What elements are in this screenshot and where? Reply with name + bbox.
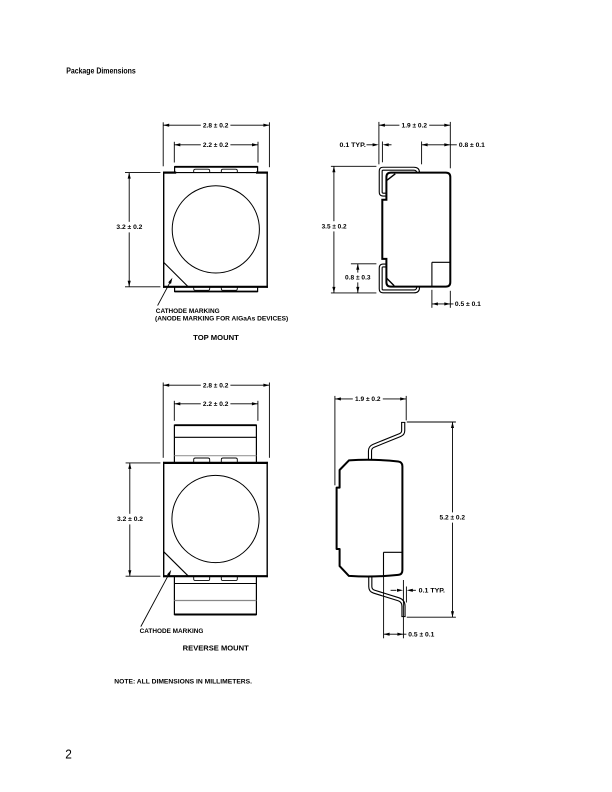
svg-text:(ANODE MARKING FOR AlGaAs DEVI: (ANODE MARKING FOR AlGaAs DEVICES) [155,316,288,322]
svg-text:1.9 ± 0.2: 1.9 ± 0.2 [355,397,381,403]
svg-text:CATHODE MARKING: CATHODE MARKING [140,629,204,635]
svg-text:2: 2 [65,747,72,762]
svg-text:NOTE: ALL DIMENSIONS IN MILLIM: NOTE: ALL DIMENSIONS IN MILLIMETERS. [114,678,252,685]
svg-text:0.1 TYP.: 0.1 TYP. [419,588,446,594]
svg-text:3.2 ± 0.2: 3.2 ± 0.2 [117,517,144,523]
svg-text:0.8 ± 0.3: 0.8 ± 0.3 [345,276,371,282]
svg-text:1.9 ± 0.2: 1.9 ± 0.2 [402,123,428,129]
svg-text:0.8 ± 0.1: 0.8 ± 0.1 [459,143,486,149]
svg-text:0.1 TYP.: 0.1 TYP. [340,143,367,149]
svg-text:REVERSE MOUNT: REVERSE MOUNT [183,646,250,653]
svg-text:2.8 ± 0.2: 2.8 ± 0.2 [203,383,229,389]
svg-text:Package Dimensions: Package Dimensions [66,67,136,76]
svg-text:0.5 ± 0.1: 0.5 ± 0.1 [455,302,482,308]
svg-text:5.2 ± 0.2: 5.2 ± 0.2 [440,516,466,522]
svg-text:TOP MOUNT: TOP MOUNT [193,335,239,342]
svg-text:2.8 ± 0.2: 2.8 ± 0.2 [203,123,229,129]
svg-text:2.2 ± 0.2: 2.2 ± 0.2 [203,143,229,149]
svg-text:2.2 ± 0.2: 2.2 ± 0.2 [203,402,229,408]
svg-text:CATHODE MARKING: CATHODE MARKING [156,309,220,315]
svg-text:3.5 ± 0.2: 3.5 ± 0.2 [322,225,348,231]
svg-text:0.5 ± 0.1: 0.5 ± 0.1 [408,632,435,638]
svg-text:3.2 ± 0.2: 3.2 ± 0.2 [116,225,143,231]
